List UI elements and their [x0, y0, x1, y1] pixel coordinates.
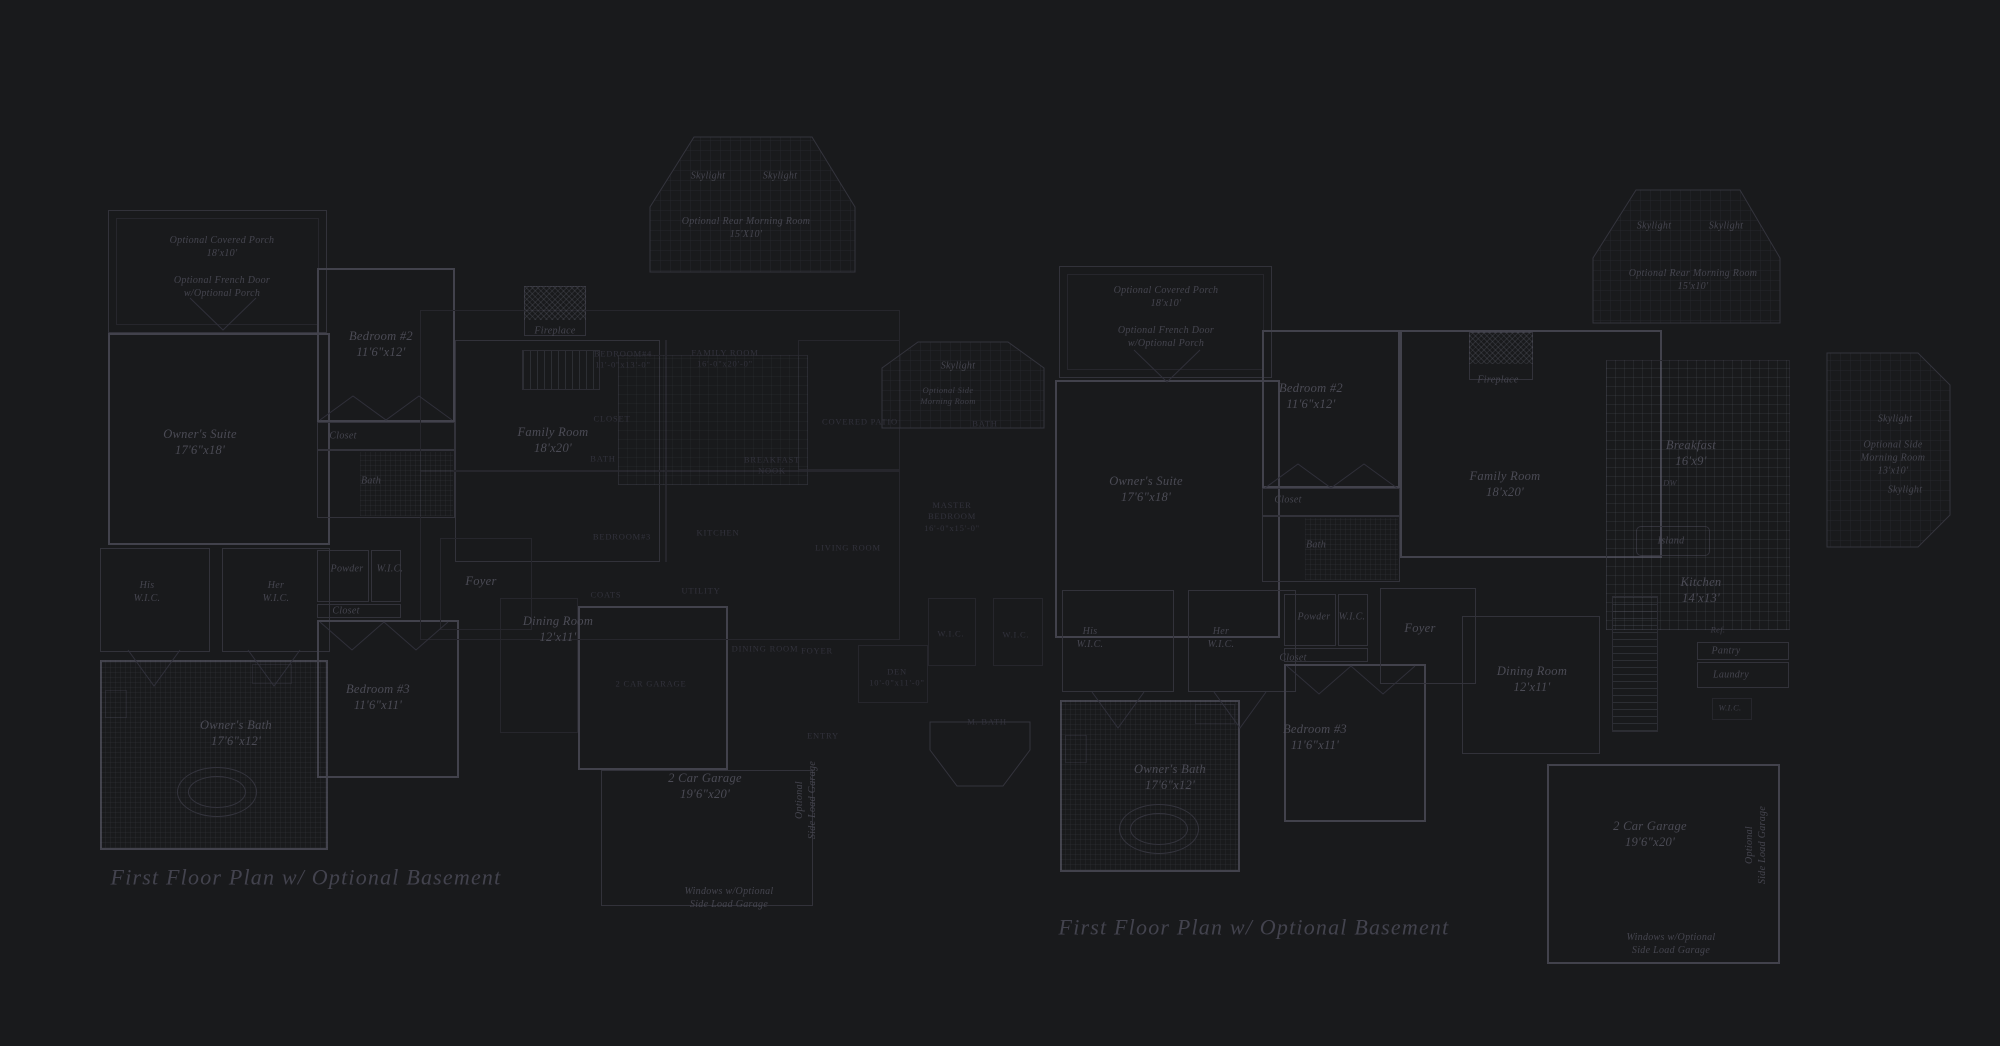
right-plan-rear-morning-bay: [1593, 190, 1780, 323]
right-plan-bedroom3-closet-door: [1287, 666, 1415, 694]
left-plan-bedroom2-closet-door: [320, 396, 452, 420]
right-plan-side-morning-bay: [1827, 353, 1950, 547]
right-plan-her-wic-door: [1214, 692, 1266, 728]
left-plan-her-wic-door: [248, 650, 300, 686]
left-plan-his-wic-door: [128, 650, 180, 686]
right-plan-porch-door-swing: [1134, 350, 1200, 382]
left-plan-bedroom3-closet-door: [320, 622, 448, 650]
linework-layer: [0, 0, 2000, 1046]
left-plan-side-morning-bay: [882, 342, 1044, 428]
floor-plan-sheet: First Floor Plan w/ Optional BasementOpt…: [0, 0, 2000, 1046]
left-plan-rear-morning-bay: [650, 137, 855, 272]
left-plan-mbath-bay: [930, 722, 1030, 786]
right-plan-bedroom2-closet-door: [1265, 464, 1397, 488]
left-plan-porch-door-swing: [190, 298, 256, 330]
right-plan-his-wic-door: [1092, 692, 1144, 728]
